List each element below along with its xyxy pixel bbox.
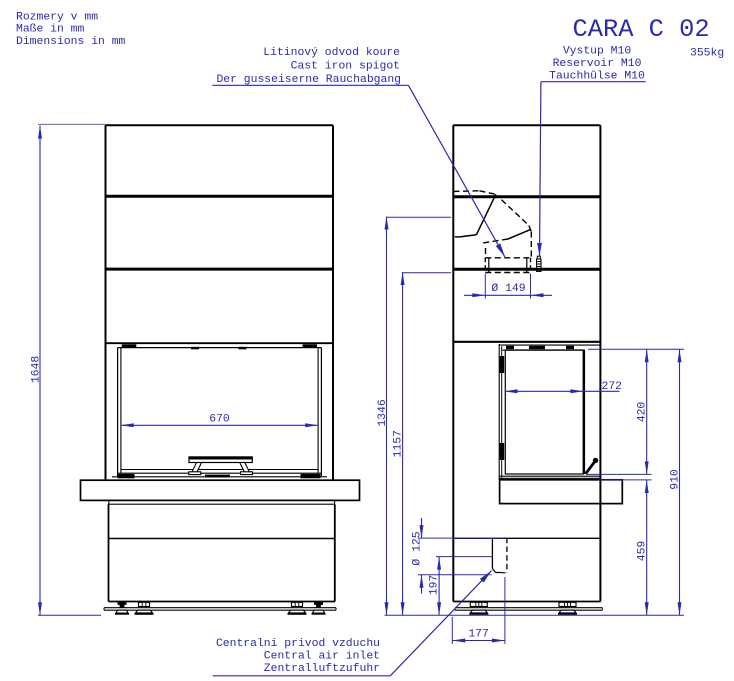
svg-text:CARA C 02: CARA C 02 <box>573 15 710 44</box>
svg-text:Tauchhûlse M10: Tauchhûlse M10 <box>549 70 645 82</box>
svg-text:Litinový odvod koure: Litinový odvod koure <box>263 47 400 59</box>
svg-text:Rozmery v mm: Rozmery v mm <box>16 11 98 23</box>
svg-text:Central air inlet: Central air inlet <box>264 650 380 662</box>
svg-text:910: 910 <box>669 469 681 490</box>
svg-text:Ø 149: Ø 149 <box>491 283 525 295</box>
svg-text:Der gusseiserne Rauchabgang: Der gusseiserne Rauchabgang <box>216 74 401 86</box>
svg-text:355kg: 355kg <box>690 48 724 60</box>
svg-text:Maße in mm: Maße in mm <box>16 24 85 36</box>
svg-text:Cast iron spigot: Cast iron spigot <box>291 60 400 72</box>
svg-text:Reservoir M10: Reservoir M10 <box>553 58 642 70</box>
svg-text:Dimensions in mm: Dimensions in mm <box>16 36 126 48</box>
svg-text:420: 420 <box>637 402 649 423</box>
svg-text:459: 459 <box>637 541 649 562</box>
svg-text:1346: 1346 <box>377 399 389 427</box>
svg-text:Zentralluftzufuhr: Zentralluftzufuhr <box>264 663 380 675</box>
svg-text:670: 670 <box>209 413 230 425</box>
svg-text:272: 272 <box>602 381 623 393</box>
svg-text:1648: 1648 <box>31 356 43 384</box>
svg-text:197: 197 <box>429 575 441 596</box>
svg-text:Centralni privod vzduchu: Centralni privod vzduchu <box>216 638 380 650</box>
svg-text:Vystup M10: Vystup M10 <box>563 45 632 57</box>
svg-text:1157: 1157 <box>393 430 405 457</box>
svg-text:177: 177 <box>468 629 489 641</box>
svg-text:Ø 125: Ø 125 <box>411 531 423 565</box>
